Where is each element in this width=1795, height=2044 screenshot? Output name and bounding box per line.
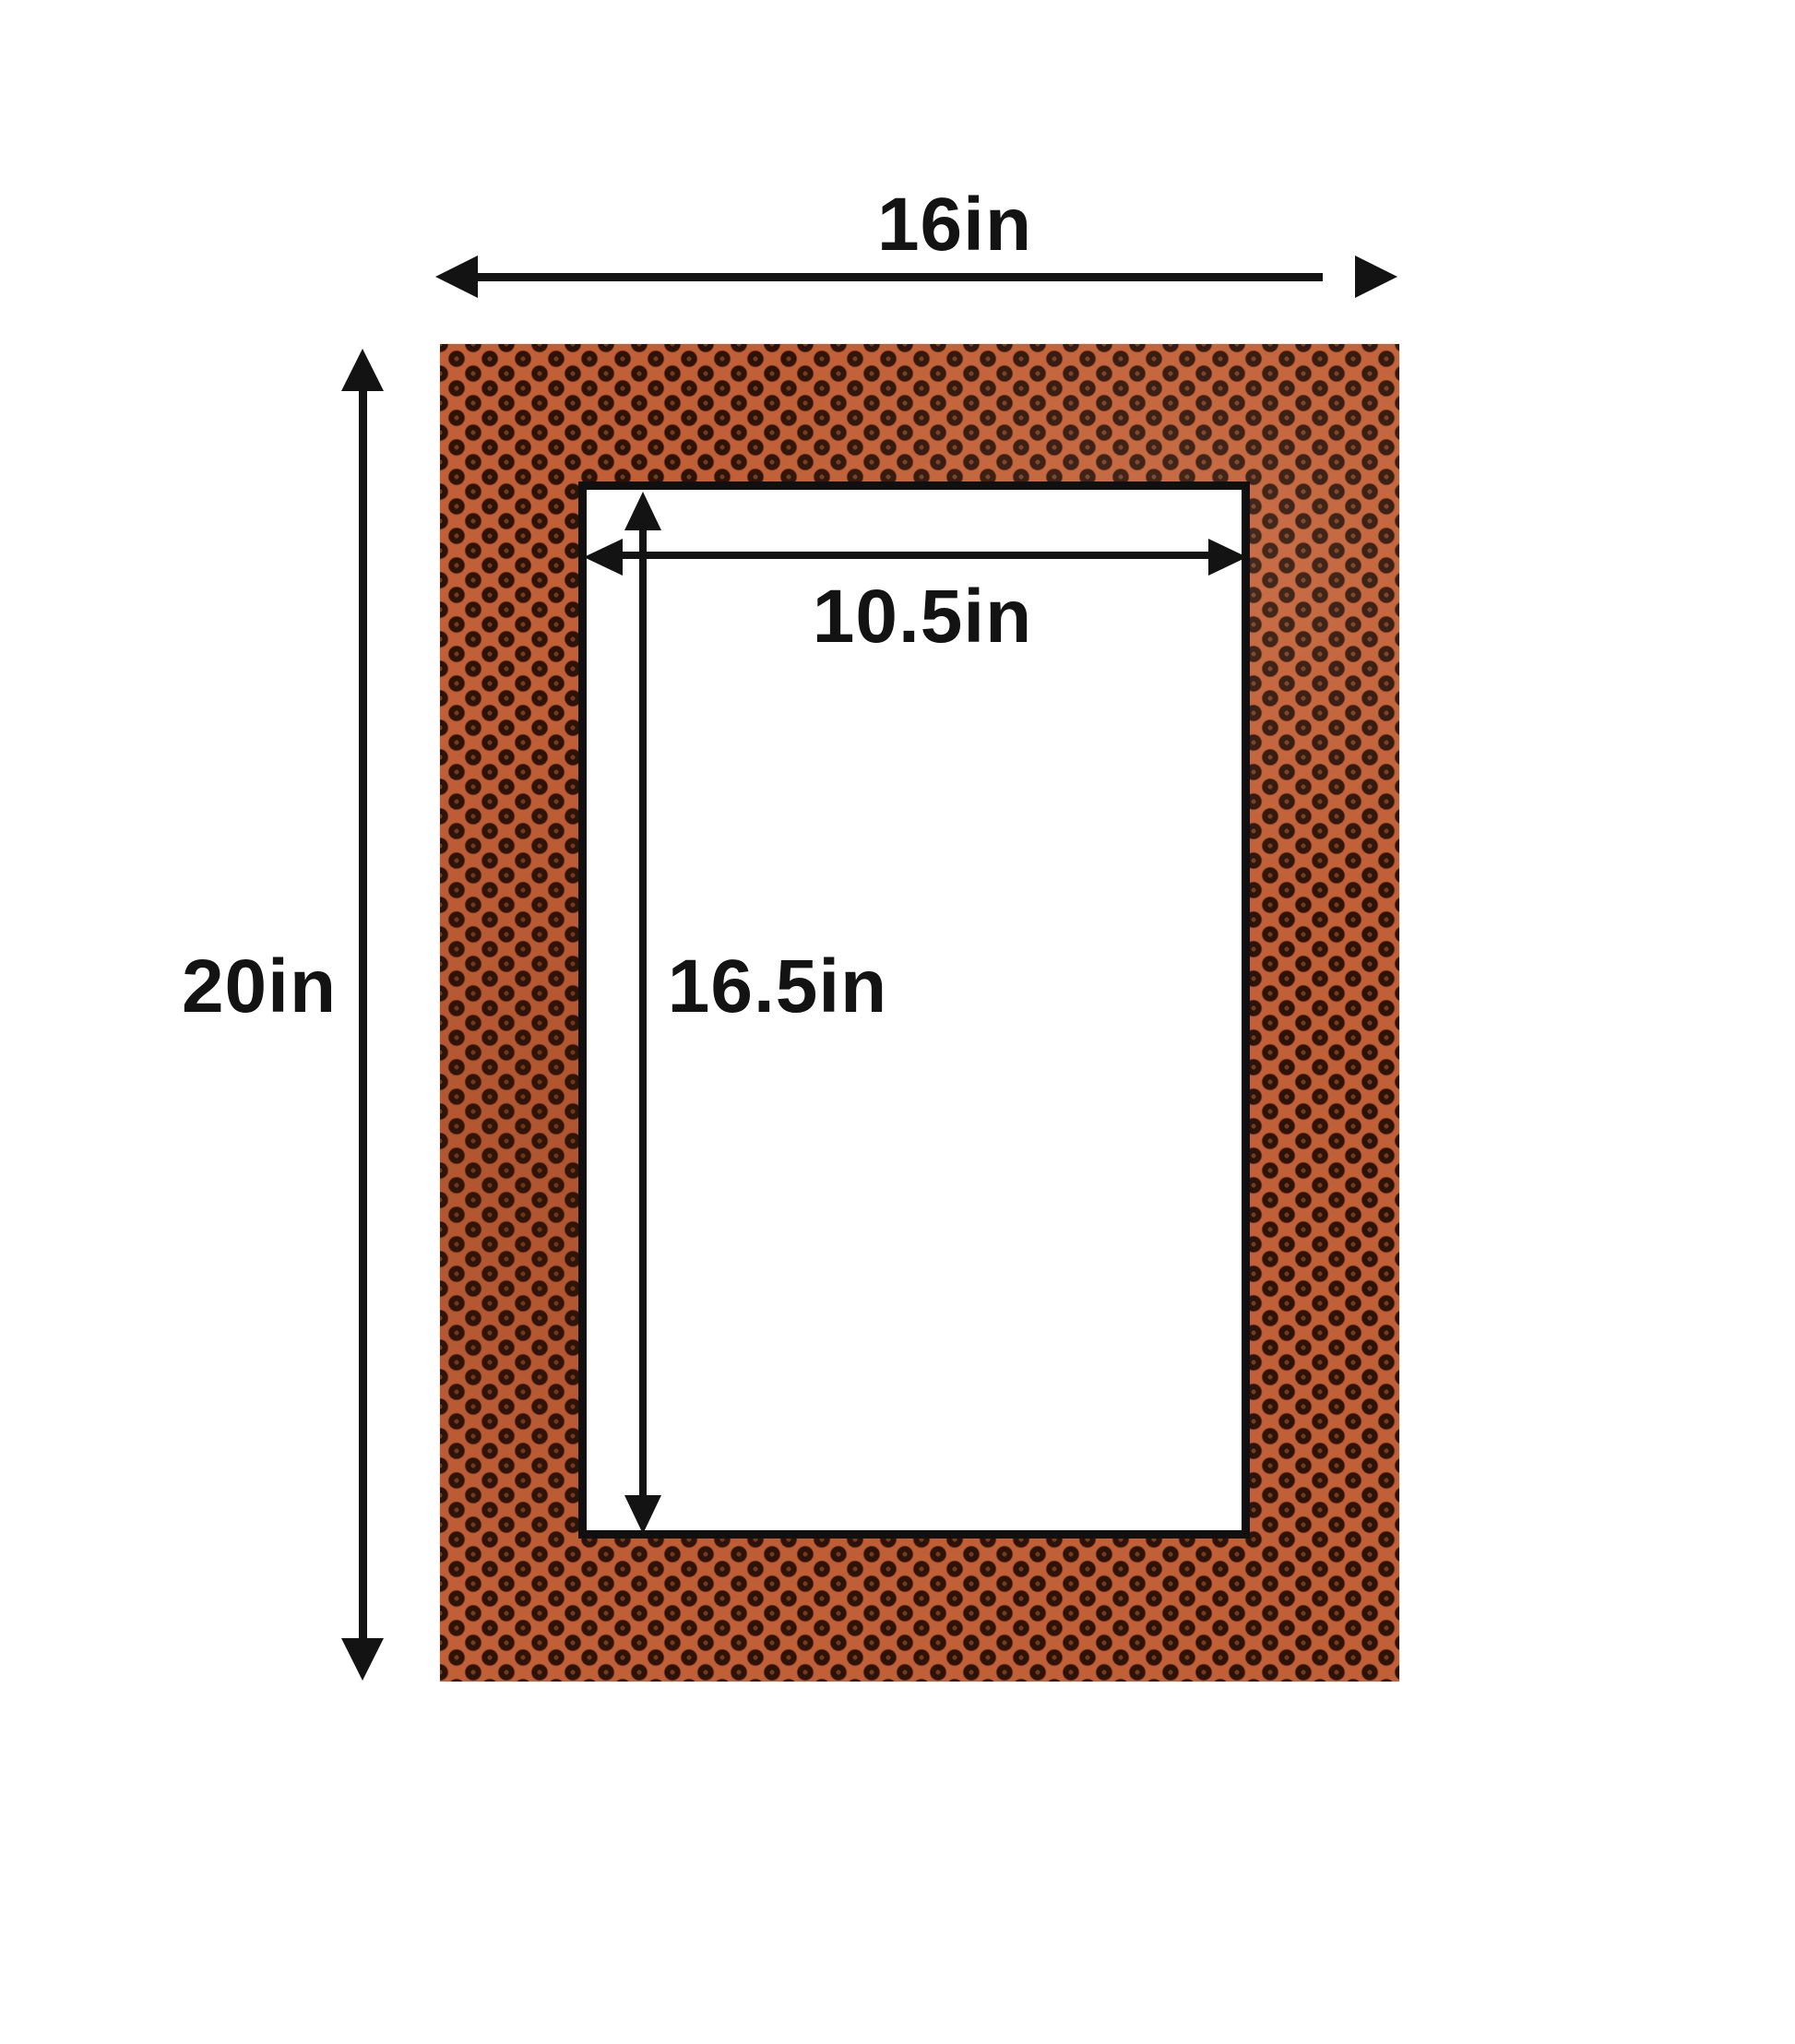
- outer-height-label: 20in: [75, 949, 444, 1025]
- opening-width-arrow-line: [618, 552, 1213, 559]
- opening-height-label: 16.5in: [593, 949, 962, 1025]
- opening-width-label: 10.5in: [738, 579, 1107, 655]
- arrow-up-icon: [624, 492, 661, 530]
- arrow-down-icon: [624, 1495, 661, 1534]
- arrow-left-icon: [435, 255, 478, 298]
- arrow-down-icon: [341, 1638, 384, 1681]
- outer-width-label: 16in: [770, 187, 1139, 263]
- arrow-right-icon: [1208, 539, 1247, 576]
- arrow-up-icon: [341, 349, 384, 391]
- outer-width-arrow-line: [474, 273, 1323, 281]
- arrow-left-icon: [584, 539, 623, 576]
- arrow-right-icon: [1355, 255, 1397, 298]
- mat-dimension-diagram: 16in 20in 10.5in 16.5in: [0, 0, 1795, 2044]
